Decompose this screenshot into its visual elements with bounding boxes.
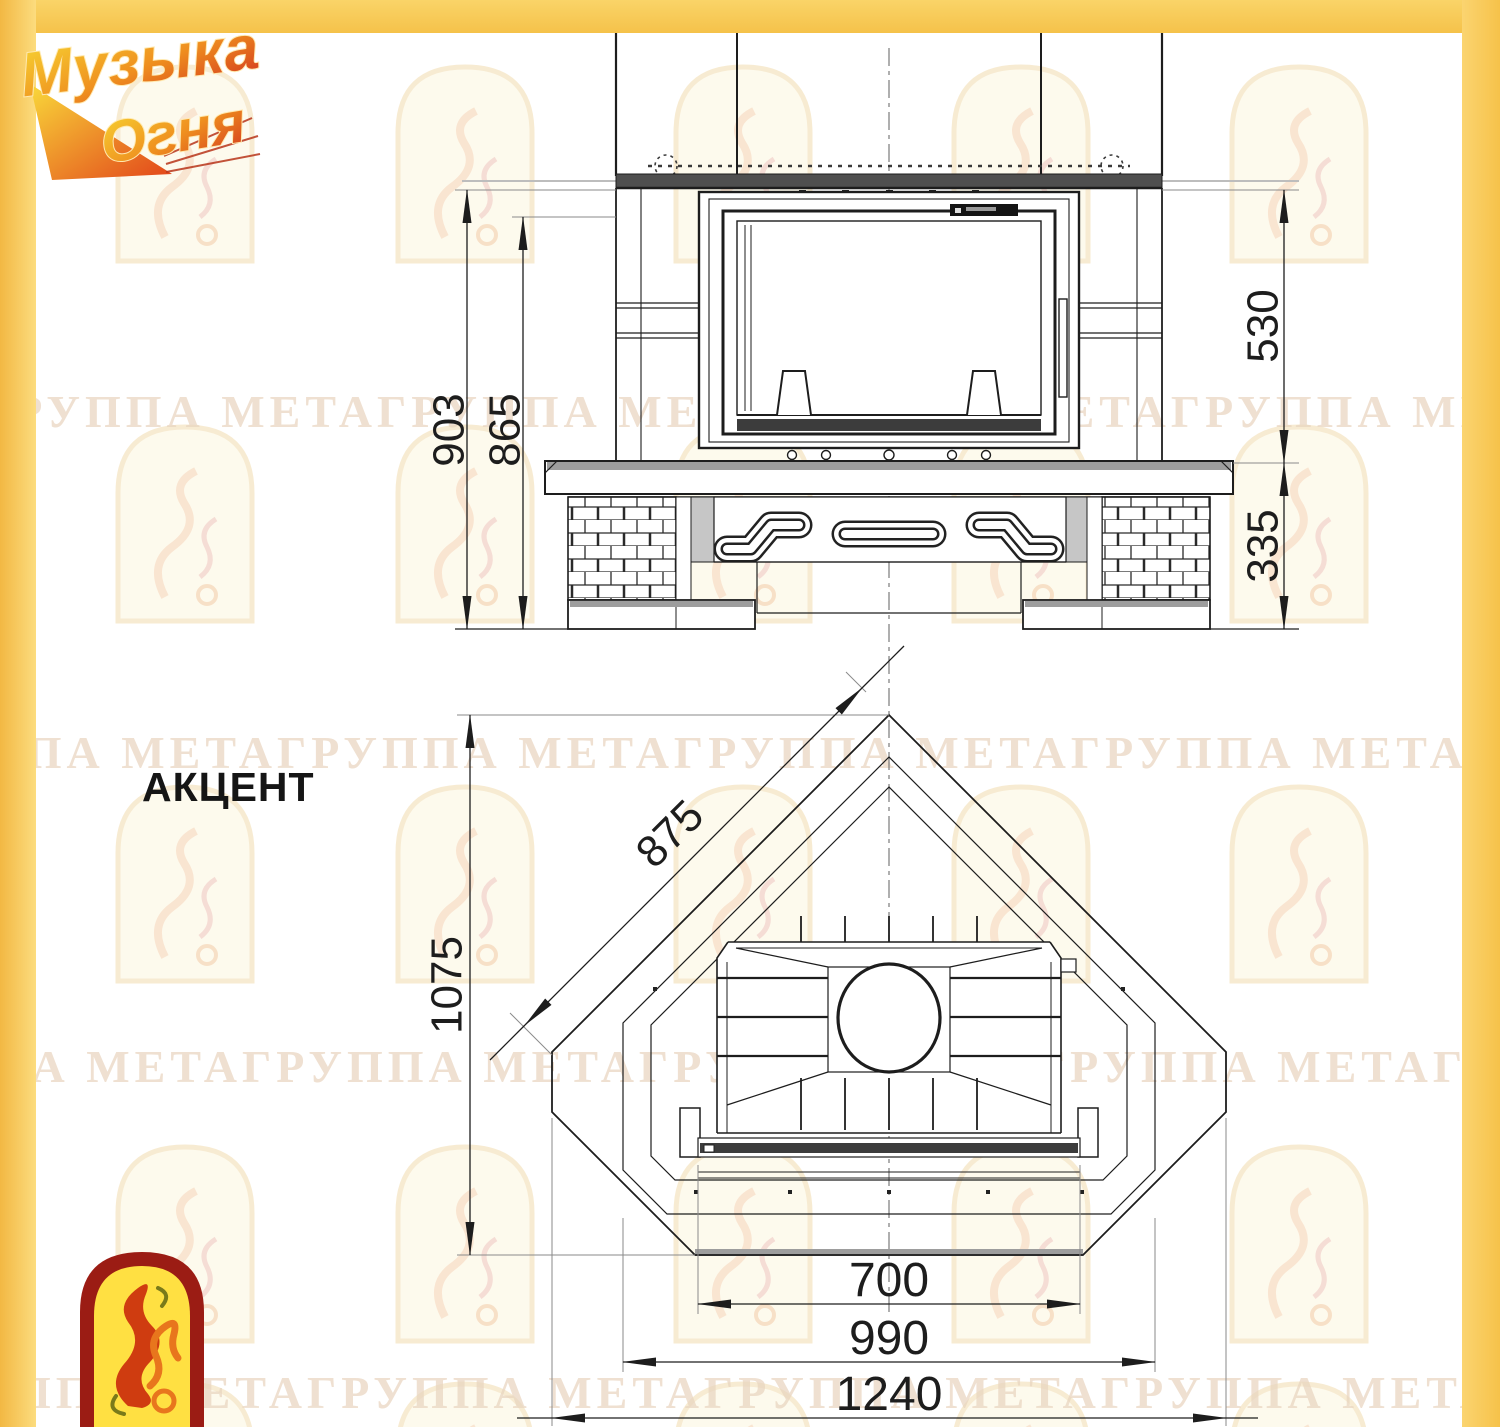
dim-total-height: 903 bbox=[425, 393, 474, 466]
portal-pillar-left bbox=[616, 188, 699, 462]
dim-overall-width: 1240 bbox=[836, 1368, 943, 1421]
hearth-slab bbox=[545, 461, 1233, 494]
brick-pillar-right bbox=[1102, 497, 1210, 600]
plinth-right bbox=[1023, 600, 1210, 629]
firebox-insert bbox=[699, 192, 1079, 460]
base bbox=[455, 497, 1299, 629]
plan-insert bbox=[680, 916, 1098, 1157]
decor-panel bbox=[714, 497, 1066, 613]
dim-firebox-height: 530 bbox=[1239, 289, 1288, 362]
dim-depth: 1075 bbox=[423, 936, 472, 1034]
dim-edge-diagonal: 875 bbox=[627, 791, 714, 878]
brick-pillar-left bbox=[568, 497, 676, 600]
frame-bar-left bbox=[0, 0, 36, 1427]
dim-hearth-width: 990 bbox=[849, 1312, 929, 1365]
technical-drawing: 903 865 530 335 bbox=[0, 0, 1500, 1427]
frame-bar-right bbox=[1462, 0, 1500, 1427]
andiron-right bbox=[967, 371, 1001, 415]
logo-word-2: Огня bbox=[96, 89, 250, 176]
portal-pillar-right bbox=[1079, 188, 1162, 462]
page: ГРУППА МЕТАГРУППА МЕТАГРУППА МЕТАГРУППА … bbox=[0, 0, 1500, 1427]
front-view bbox=[455, 20, 1299, 629]
dim-insert-width: 700 bbox=[849, 1254, 929, 1307]
flue-outlet bbox=[838, 964, 940, 1072]
plinth-left bbox=[568, 600, 755, 629]
brand-logo: Музыка Огня bbox=[14, 6, 284, 191]
dim-base-height: 335 bbox=[1239, 509, 1288, 582]
andiron-left bbox=[777, 371, 811, 415]
emblem-logo bbox=[76, 1246, 208, 1427]
door-handle bbox=[1059, 299, 1067, 397]
dim-opening-height: 865 bbox=[481, 393, 530, 466]
model-name: АКЦЕНТ bbox=[142, 764, 315, 811]
